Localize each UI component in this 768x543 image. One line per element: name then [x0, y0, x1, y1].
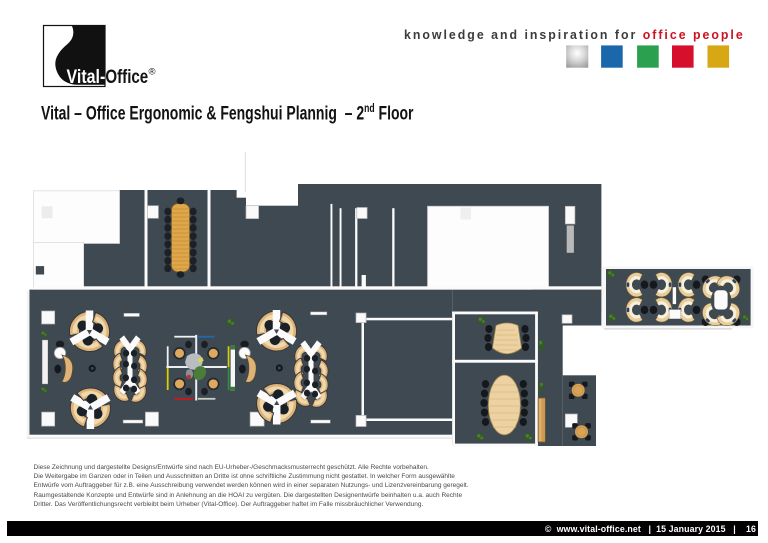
svg-text:®: ® — [149, 67, 156, 78]
svg-text:Vital-: Vital- — [67, 66, 106, 88]
svg-text:Office: Office — [105, 66, 148, 88]
